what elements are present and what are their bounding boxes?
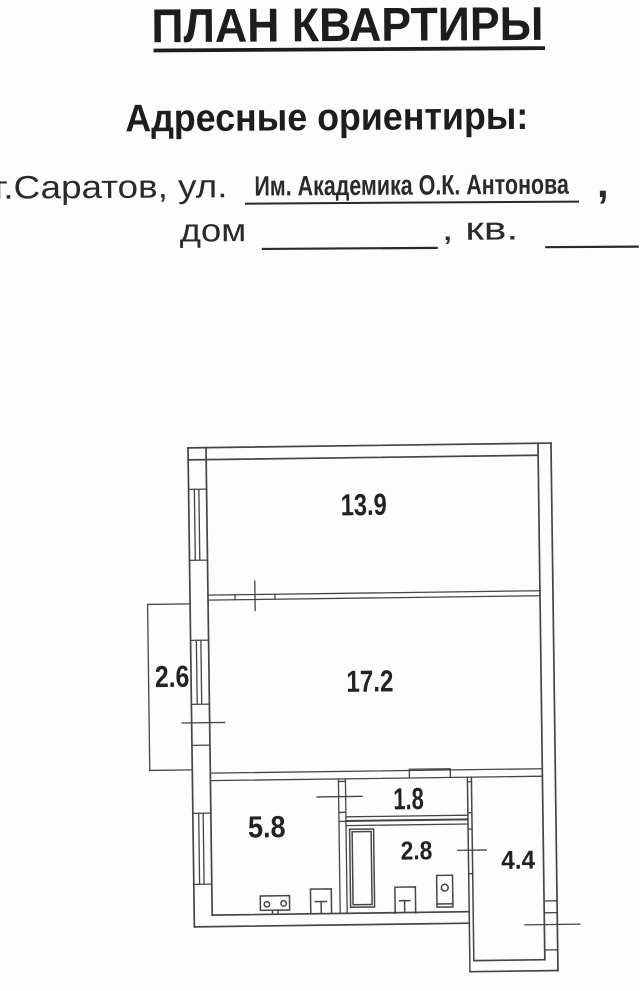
svg-text:,: ,	[597, 159, 609, 206]
svg-text:13.9: 13.9	[341, 488, 387, 523]
svg-text:Им. Академика О.К. Антонова: Им. Академика О.К. Антонова	[254, 169, 569, 202]
svg-text:г.Саратов, ул.: г.Саратов, ул.	[0, 168, 228, 205]
svg-text:2.8: 2.8	[400, 835, 432, 865]
svg-text:2.6: 2.6	[155, 660, 190, 694]
svg-text:ПЛАН КВАРТИРЫ: ПЛАН КВАРТИРЫ	[151, 0, 543, 53]
svg-text:дом: дом	[180, 212, 247, 248]
svg-text:17.2: 17.2	[346, 664, 393, 699]
svg-text:4.4: 4.4	[501, 845, 536, 875]
svg-text:Адресные ориентиры:: Адресные ориентиры:	[125, 95, 528, 140]
svg-text:, кв.: , кв.	[442, 210, 519, 246]
svg-text:1.8: 1.8	[393, 782, 424, 816]
svg-text:5.8: 5.8	[248, 810, 286, 844]
